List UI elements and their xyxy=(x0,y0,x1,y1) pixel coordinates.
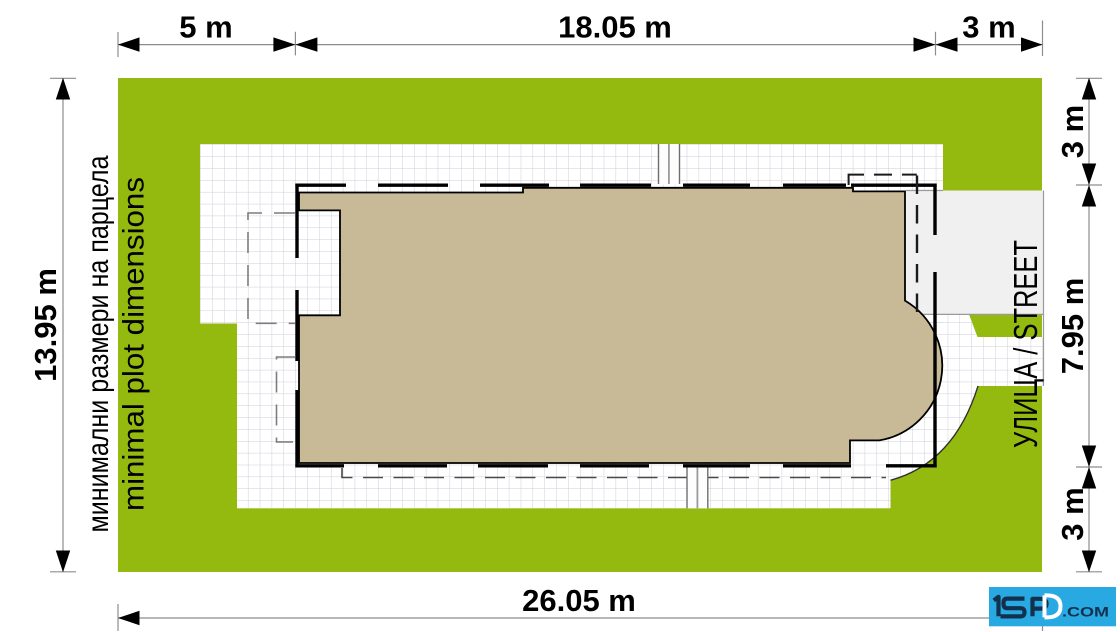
svg-text:минимални размери на парцела: минимални размери на парцела xyxy=(82,155,115,532)
svg-text:УЛИЦА / STREET: УЛИЦА / STREET xyxy=(1007,240,1044,448)
svg-text:.COM: .COM xyxy=(1062,604,1109,620)
svg-text:18.05 m: 18.05 m xyxy=(558,10,672,45)
svg-text:7.95 m: 7.95 m xyxy=(1055,278,1090,375)
svg-text:minimal plot dimensions: minimal plot dimensions xyxy=(118,177,151,511)
svg-text:26.05 m: 26.05 m xyxy=(522,583,636,618)
svg-text:3 m: 3 m xyxy=(962,10,1015,45)
svg-text:5 m: 5 m xyxy=(179,10,232,45)
svg-text:3 m: 3 m xyxy=(1055,487,1090,540)
svg-text:3 m: 3 m xyxy=(1055,105,1090,158)
svg-text:13.95 m: 13.95 m xyxy=(28,268,63,382)
